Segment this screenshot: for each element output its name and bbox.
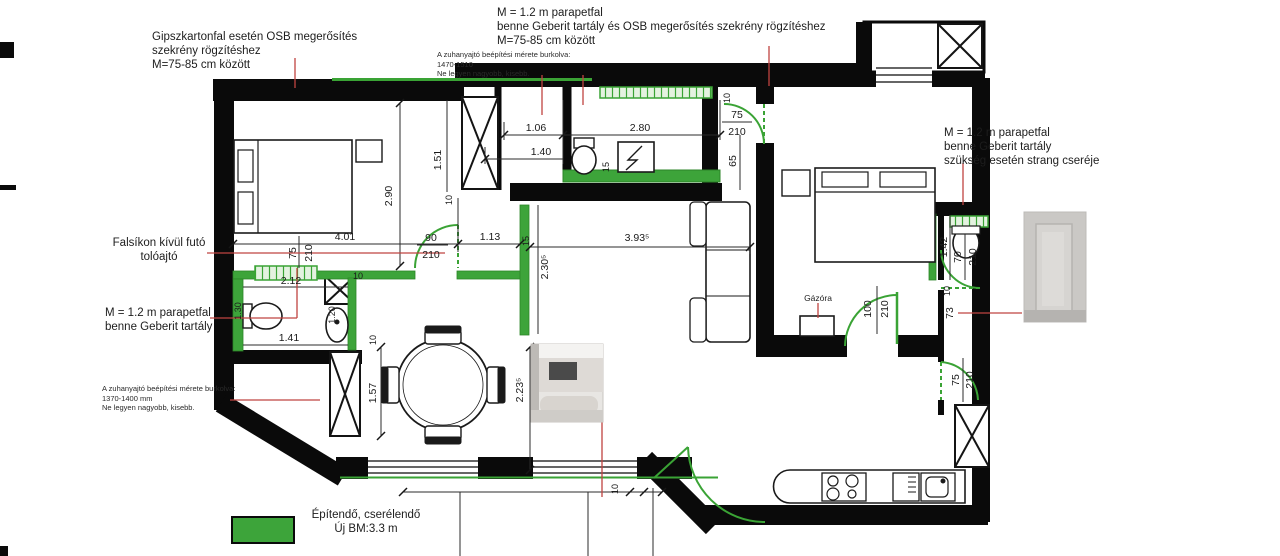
new-wall (457, 271, 524, 279)
dim-label: 75 (287, 247, 299, 259)
dim-label: 2.90 (383, 186, 395, 207)
dim-label: 10 (353, 271, 363, 281)
dim-label: 73 (944, 307, 956, 319)
floor-plan-page: 1.51 1.06 1.40 2.80 2.90 4.01 75 210 90 … (0, 0, 1280, 556)
sink (921, 473, 955, 501)
bed (815, 168, 935, 262)
dim-label: 1.41 (279, 332, 300, 344)
photo-glass-door (1024, 212, 1086, 322)
dim-label: 4.01 (335, 231, 356, 243)
dim-label: 210 (303, 244, 315, 262)
washbasin-counter (600, 87, 712, 98)
dim-label: 90 (425, 232, 437, 244)
annotation-parapet-top: M = 1.2 m parapetfal benne Geberit tartá… (497, 6, 826, 48)
nightstand (356, 140, 382, 162)
dim-label: 1.40 (531, 146, 552, 158)
dim-label: 15 (521, 236, 531, 246)
dim-label: 3.93⁵ (625, 232, 650, 244)
legend-line2: Új BM:3.3 m (300, 522, 432, 536)
shaft-box (330, 352, 360, 436)
dim-label: 70 (952, 251, 964, 263)
nightstand (782, 170, 810, 196)
dim-label: 15 (601, 162, 611, 172)
dim-label: 65 (727, 155, 739, 167)
dim-label: 1.51 (432, 150, 444, 171)
shaft-box (462, 97, 498, 189)
dim-label: 1.42 (938, 237, 950, 258)
annotation-shower-left: A zuhanyajtó beépítési mérete burkolva: … (102, 384, 235, 413)
dim-label: 210 (422, 249, 440, 261)
dim-label: 75 (731, 109, 743, 121)
dim-label: 2.23⁵ (514, 378, 526, 403)
dim-label: 1.06 (526, 122, 547, 134)
floor-plan-drawing: 1.51 1.06 1.40 2.80 2.90 4.01 75 210 90 … (0, 0, 1280, 556)
bed (234, 140, 352, 233)
annotation-parapet-left: M = 1.2 m parapetfal benne Geberit tartá… (105, 306, 212, 334)
kitchen-counter (774, 470, 966, 503)
dim-label: 10 (722, 93, 732, 103)
dim-label: 210 (879, 300, 891, 318)
annotation-sliding-door: Falsíkon kívül futó tolóajtó (98, 236, 220, 264)
sofa (690, 202, 750, 342)
shaft-box (955, 405, 989, 467)
gas-meter-box (800, 316, 834, 336)
dim-label: 2.80 (630, 122, 651, 134)
dim-label: 2.12 (281, 275, 302, 287)
annotation-gas-meter: Gázóra (796, 291, 840, 305)
stove (822, 473, 866, 501)
dim-label: 210 (967, 248, 979, 266)
legend-line1: Építendő, cserélendő (300, 508, 432, 522)
new-wall (348, 278, 356, 350)
dim-label: 1.20 (327, 306, 337, 324)
new-wall (520, 205, 529, 335)
dim-label: 1.30 (233, 302, 243, 320)
dim-label: 100 (862, 300, 874, 318)
dishwasher (893, 473, 919, 501)
door-swing (845, 292, 897, 346)
annotation-shower-top: A zuhanyajtó beépítési mérete burkolva: … (437, 50, 570, 79)
toilet (572, 138, 596, 174)
dim-label: 1.13 (480, 231, 501, 243)
washing-machine (618, 142, 654, 172)
dim-label: 10 (444, 195, 454, 205)
dim-label: 10 (368, 335, 378, 345)
door-swing (724, 104, 764, 144)
dim-label: 1.57 (367, 383, 379, 404)
dim-label: 2.30⁵ (539, 255, 551, 280)
shaft-box (938, 24, 982, 68)
dim-label: 210 (964, 371, 976, 389)
legend-text: Építendő, cserélendő Új BM:3.3 m (300, 508, 432, 536)
washbasin-counter (950, 216, 988, 227)
dim-label: 10 (610, 484, 620, 494)
annotation-gipszkarton: Gipszkartonfal esetén OSB megerősítés sz… (152, 30, 357, 72)
legend-swatch (232, 517, 294, 543)
photo-living-room (531, 344, 603, 422)
toilet (243, 303, 282, 329)
dim-label: 75 (950, 374, 962, 386)
dining-table (381, 326, 505, 444)
annotation-parapet-right: M = 1.2 m parapetfal benne Geberit tartá… (944, 126, 1099, 168)
dim-label: 10 (942, 286, 952, 296)
dim-label: 210 (728, 126, 746, 138)
